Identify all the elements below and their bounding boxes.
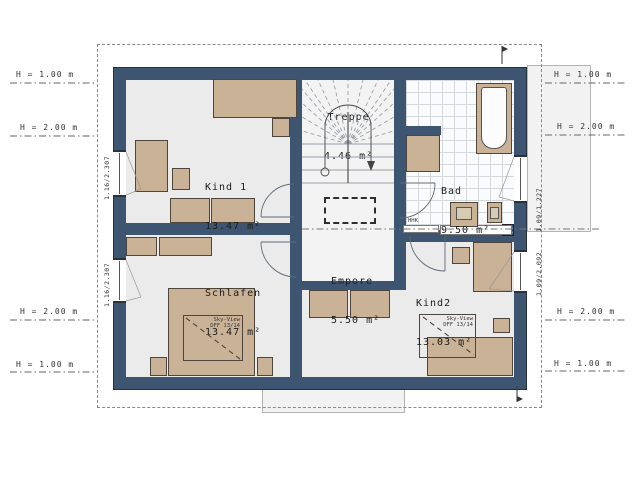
height-mark-right-3: H = 2.00 m (557, 307, 615, 316)
floor-plan-canvas: HHK Sky-ViewDFF 13/14 Sky-ViewDFF 13/14 … (0, 0, 640, 480)
window-label-bad: 1.09/1.227 (535, 188, 543, 232)
room-label-bad: Bad 9.50 m² (441, 159, 490, 263)
height-mark-left-4: H = 1.00 m (16, 360, 74, 369)
room-label-kind1: Kind 1 13.47 m² (205, 155, 261, 259)
wall-stub-bad-closet (406, 126, 441, 135)
furniture-kind1-table (172, 168, 190, 190)
room-area: 13.47 m² (205, 220, 261, 233)
furniture-kind1-sofa-1 (170, 198, 210, 223)
height-mark-right-2: H = 2.00 m (557, 122, 615, 131)
room-area: 5.50 m² (331, 314, 380, 327)
bad-wc-bowl (490, 207, 499, 219)
room-area: 13.03 m² (416, 336, 472, 349)
room-name: Kind 1 (205, 181, 261, 194)
window-schlafen (113, 258, 126, 303)
wall-stair-right-upper (394, 80, 406, 183)
room-label-schlafen: Schlafen 13.47 m² (205, 261, 261, 365)
empore-void-opening (324, 197, 376, 224)
room-name: Bad (441, 185, 490, 198)
furniture-schlafen-nightstand-left (150, 357, 167, 376)
room-label-kind2: Kind2 13.03 m² (416, 271, 472, 375)
bad-radiator-hhk (403, 225, 439, 233)
window-label-kind1: 1.16/2.307 (103, 156, 111, 200)
window-bad (514, 155, 527, 203)
furniture-kind1-bed (213, 79, 297, 118)
window-label-kind2: 1.09/2.092 (535, 252, 543, 296)
furniture-kind1-side-square (272, 118, 290, 137)
room-label-empore: Empore 5.50 m² (331, 249, 380, 353)
room-name: Schlafen (205, 287, 261, 300)
room-area: 4.46 m² (324, 150, 373, 163)
hhk-label: HHK (408, 218, 418, 224)
window-kind2 (514, 250, 527, 293)
furniture-schlafen-wardrobe-1 (126, 237, 157, 256)
bathtub-basin (481, 87, 507, 149)
room-label-treppe: Treppe 4.46 m² (324, 85, 373, 189)
bad-closet (406, 135, 440, 172)
height-mark-left-2: H = 2.00 m (20, 123, 78, 132)
furniture-kind1-wardrobe (135, 140, 168, 192)
room-name: Treppe (324, 111, 373, 124)
height-mark-left-1: H = 1.00 m (16, 70, 74, 79)
room-name: Empore (331, 275, 380, 288)
wall-schlafen-right-lower (290, 290, 302, 377)
height-mark-right-1: H = 1.00 m (554, 70, 612, 79)
height-mark-left-3: H = 2.00 m (20, 307, 78, 316)
window-kind1 (113, 150, 126, 197)
room-area: 9.50 m² (441, 224, 490, 237)
height-mark-right-4: H = 1.00 m (554, 359, 612, 368)
room-name: Kind2 (416, 297, 472, 310)
furniture-kind2-nightstand (493, 318, 510, 333)
window-label-schlafen: 1.16/2.307 (103, 263, 111, 307)
room-area: 13.47 m² (205, 326, 261, 339)
wall-stair-left-mid (290, 217, 302, 242)
